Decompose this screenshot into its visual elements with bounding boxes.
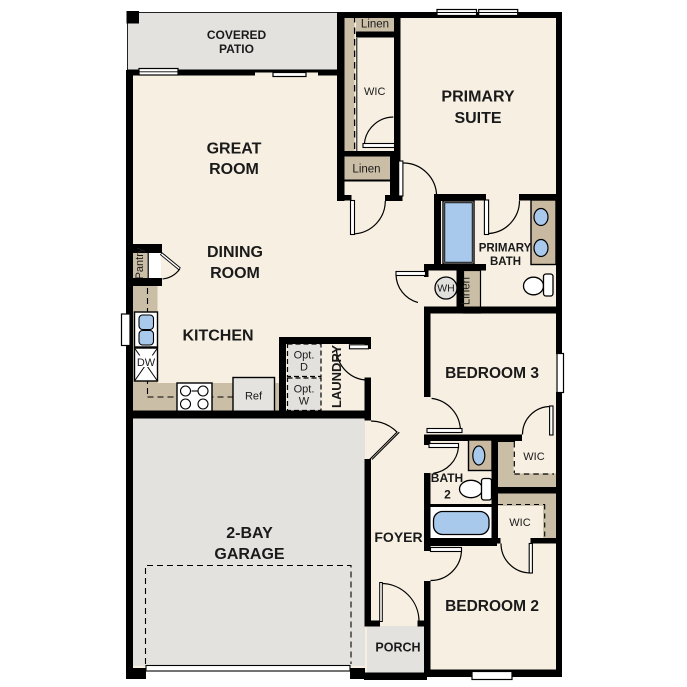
svg-text:BEDROOM 2: BEDROOM 2	[445, 598, 539, 615]
svg-text:BATH: BATH	[431, 471, 463, 485]
svg-text:WIC: WIC	[523, 451, 544, 463]
svg-text:Linen: Linen	[352, 164, 380, 176]
svg-text:WIC: WIC	[509, 517, 530, 529]
svg-text:WH: WH	[437, 283, 455, 295]
svg-text:GARAGE: GARAGE	[214, 546, 285, 563]
svg-text:Ref: Ref	[245, 391, 263, 403]
svg-text:Pantry: Pantry	[134, 247, 146, 279]
svg-text:2-BAY: 2-BAY	[226, 525, 273, 542]
svg-text:Opt.: Opt.	[294, 384, 315, 396]
svg-text:BEDROOM 3: BEDROOM 3	[445, 365, 539, 382]
svg-text:FOYER: FOYER	[374, 529, 422, 545]
svg-text:PATIO: PATIO	[219, 42, 254, 56]
svg-text:Linen: Linen	[461, 277, 473, 305]
svg-text:LAUNDRY: LAUNDRY	[329, 345, 344, 408]
svg-text:SUITE: SUITE	[454, 110, 501, 127]
svg-text:ROOM: ROOM	[210, 265, 260, 282]
svg-text:Linen: Linen	[361, 19, 389, 31]
svg-text:BATH: BATH	[490, 256, 521, 268]
svg-text:Opt.: Opt.	[294, 350, 315, 362]
svg-text:WIC: WIC	[364, 86, 385, 98]
svg-text:PRIMARY: PRIMARY	[441, 89, 515, 106]
svg-text:DINING: DINING	[207, 244, 263, 261]
svg-text:2: 2	[444, 488, 451, 502]
svg-text:KITCHEN: KITCHEN	[182, 328, 253, 345]
svg-text:D: D	[300, 362, 308, 374]
svg-text:GREAT: GREAT	[207, 141, 262, 158]
svg-text:COVERED: COVERED	[207, 28, 267, 42]
svg-text:PORCH: PORCH	[375, 641, 420, 655]
svg-text:ROOM: ROOM	[209, 161, 259, 178]
svg-text:PRIMARY: PRIMARY	[479, 243, 532, 255]
svg-text:DW: DW	[137, 357, 156, 369]
svg-text:W: W	[299, 396, 310, 408]
